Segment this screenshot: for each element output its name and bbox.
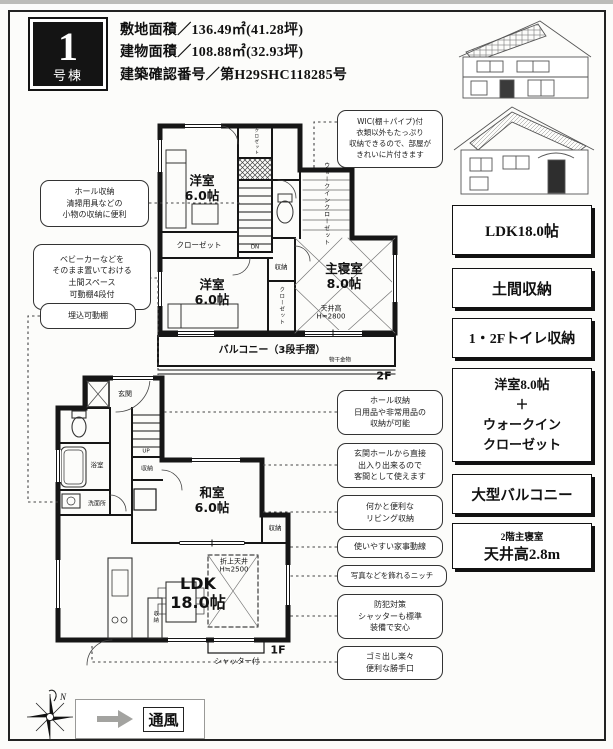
- floorplan-flyer-page: 1 号棟 敷地面積／136.49㎡(41.28坪) 建物面積／108.88㎡(3…: [0, 0, 613, 749]
- page-frame: [8, 10, 606, 741]
